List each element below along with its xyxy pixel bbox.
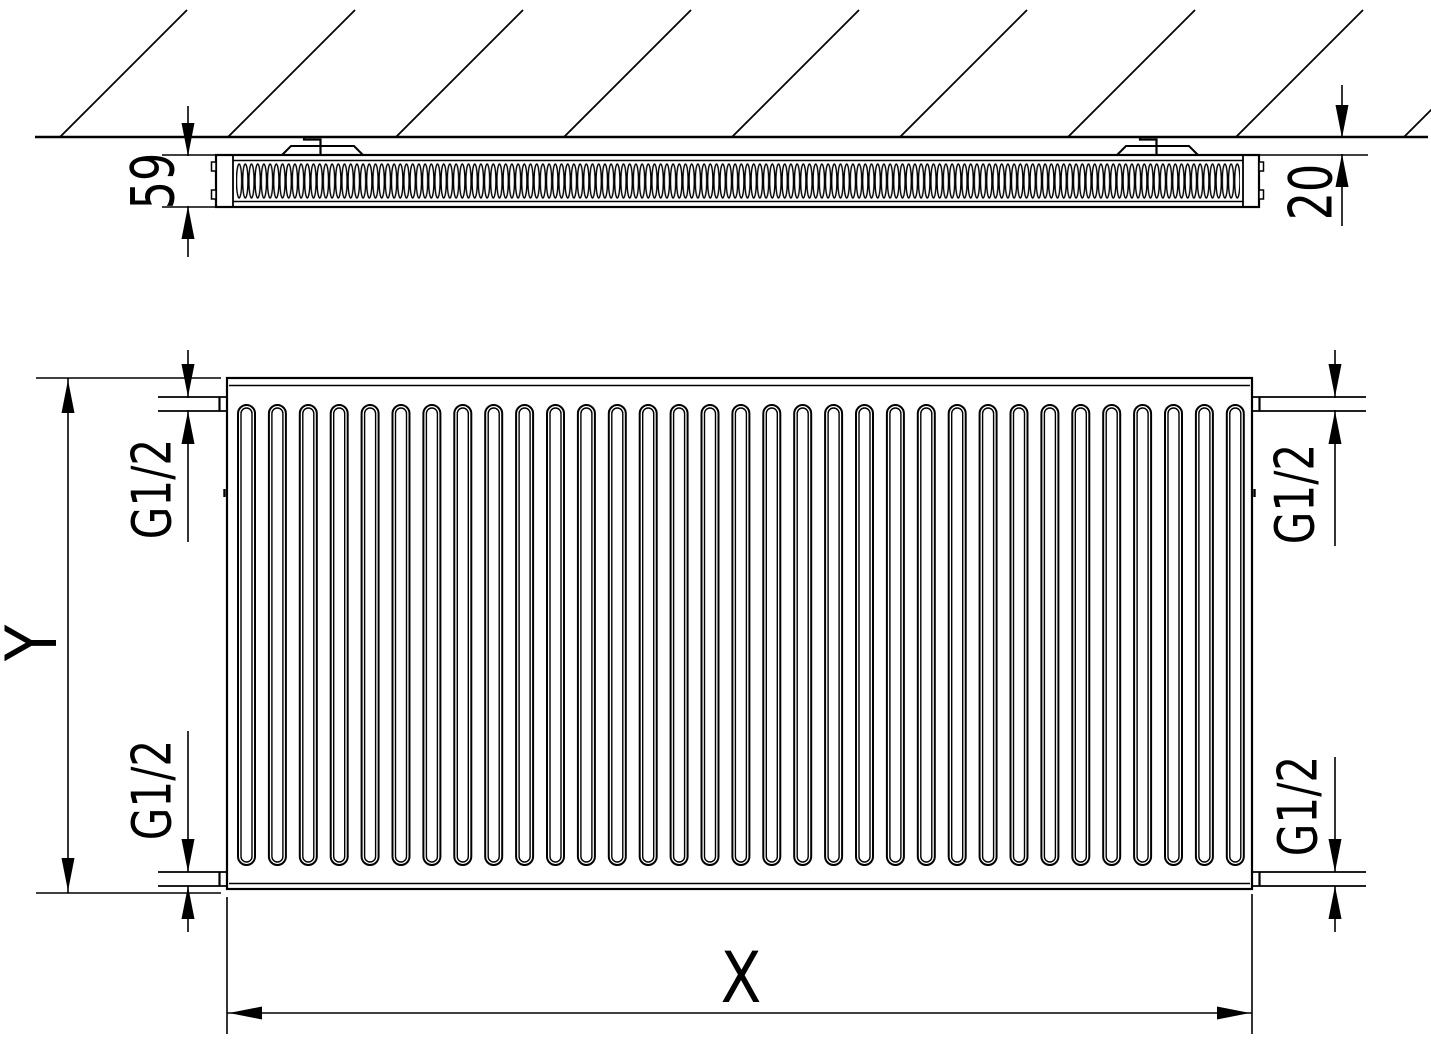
radiator-top-view-body	[212, 155, 1264, 207]
connection-thread-label: G1/2	[121, 740, 183, 840]
connection-thread-label: G1/2	[1267, 756, 1329, 856]
convector-fins-pattern	[236, 163, 1240, 199]
radiator-dimension-drawing: 59 20	[0, 0, 1431, 1053]
connection-boss	[212, 162, 217, 171]
connection-boss	[212, 190, 217, 199]
width-dimension-label: X	[721, 939, 762, 1020]
connection-thread-label: G1/2	[1264, 444, 1326, 544]
wall-gap-dimension-label: 20	[1277, 164, 1346, 220]
height-dimension-label: Y	[0, 625, 73, 663]
radiator-front-body	[225, 378, 1255, 889]
connection-boss	[1259, 190, 1264, 199]
connection-thread-label: G1/2	[121, 439, 183, 539]
connection-boss	[1259, 162, 1264, 171]
depth-dimension-label: 59	[119, 153, 188, 209]
